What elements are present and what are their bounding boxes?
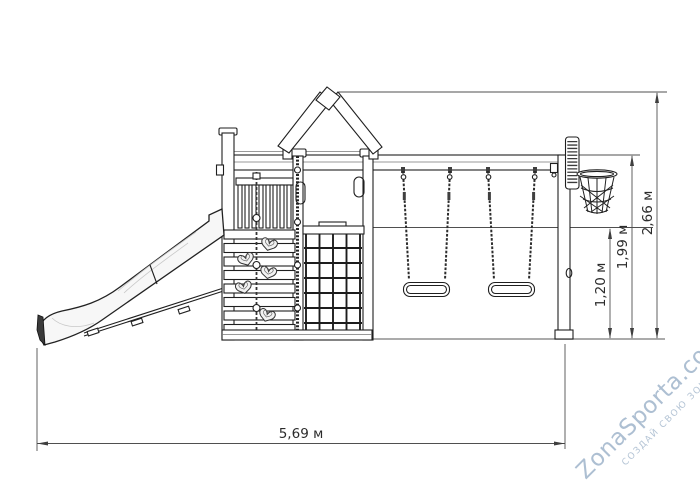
playground-structure [37, 87, 617, 345]
tower-railing [236, 178, 293, 228]
swing-seat-right [489, 283, 535, 297]
climbing-net [303, 222, 364, 331]
basketball-hoop [566, 137, 618, 214]
dim-total-width-label: 5,69 м [279, 426, 324, 442]
swings [401, 167, 537, 297]
dim-total-height-label: 2,66 м [640, 191, 656, 236]
swing-seat-left [404, 283, 450, 297]
basket-net [580, 177, 614, 214]
climbing-wall [224, 230, 295, 334]
swing-beam [224, 155, 560, 170]
gable-roof [278, 87, 382, 159]
dim-beam-height-label: 1,99 м [615, 225, 631, 270]
slide [37, 209, 224, 345]
tower-base [222, 330, 372, 340]
playground-drawing: 5,69 м 1,20 м 1,99 м 2,66 м [0, 0, 700, 494]
blueprint-canvas: 5,69 м 1,20 м 1,99 м 2,66 м ZonaSporta.c… [0, 0, 700, 494]
dim-lower-height-label: 1,20 м [593, 263, 609, 308]
